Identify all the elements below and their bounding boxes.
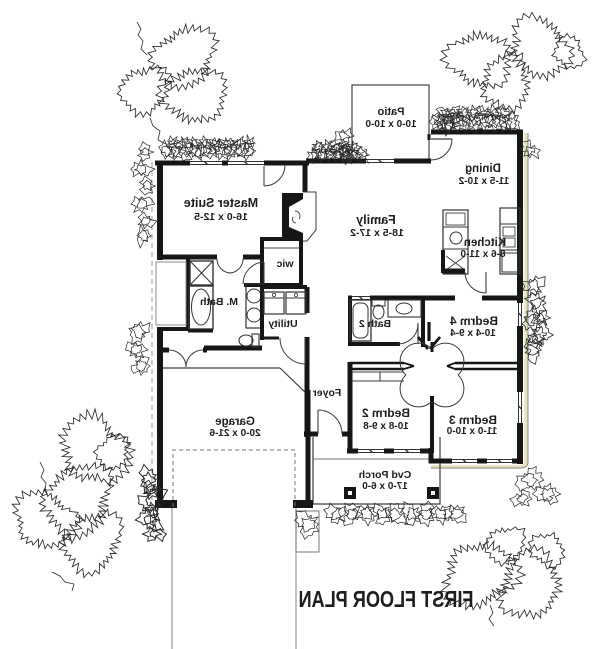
svg-text:8-6 x 11-0: 8-6 x 11-0 bbox=[460, 249, 505, 260]
svg-text:Bedrm 3: Bedrm 3 bbox=[449, 413, 497, 427]
svg-text:11-0 x 10-0: 11-0 x 10-0 bbox=[446, 426, 497, 437]
svg-text:Master Suite: Master Suite bbox=[184, 196, 258, 210]
svg-text:Family: Family bbox=[356, 213, 396, 227]
svg-text:10-8 x 9-8: 10-8 x 9-8 bbox=[363, 421, 409, 432]
svg-text:20-0 x 21-6: 20-0 x 21-6 bbox=[209, 428, 261, 439]
svg-text:10-4 x 9-4: 10-4 x 9-4 bbox=[450, 328, 496, 339]
svg-text:wic: wic bbox=[276, 258, 294, 270]
svg-text:18-5 x 17-2: 18-5 x 17-2 bbox=[350, 227, 404, 239]
svg-text:Dining: Dining bbox=[465, 163, 501, 175]
svg-text:10-0 x 10-0: 10-0 x 10-0 bbox=[365, 119, 417, 130]
svg-text:Bedrm 2: Bedrm 2 bbox=[362, 406, 410, 420]
svg-text:Foyer: Foyer bbox=[313, 387, 342, 399]
svg-text:Bedrm 4: Bedrm 4 bbox=[450, 314, 498, 328]
svg-text:M. Bath: M. Bath bbox=[200, 296, 238, 308]
svg-text:16-0 x 12-5: 16-0 x 12-5 bbox=[194, 211, 248, 223]
svg-text:17-0 x 6-0: 17-0 x 6-0 bbox=[362, 481, 408, 492]
svg-text:11-5 x 10-2: 11-5 x 10-2 bbox=[458, 176, 509, 187]
svg-text:Patio: Patio bbox=[377, 106, 404, 118]
svg-text:FIRST FLOOR PLAN: FIRST FLOOR PLAN bbox=[299, 586, 474, 612]
svg-text:Cvd Porch: Cvd Porch bbox=[359, 469, 412, 481]
svg-text:Bath 2: Bath 2 bbox=[359, 318, 391, 330]
svg-text:Garage: Garage bbox=[215, 416, 255, 428]
svg-text:Utility: Utility bbox=[268, 318, 297, 330]
svg-text:Kitchen: Kitchen bbox=[464, 237, 506, 249]
